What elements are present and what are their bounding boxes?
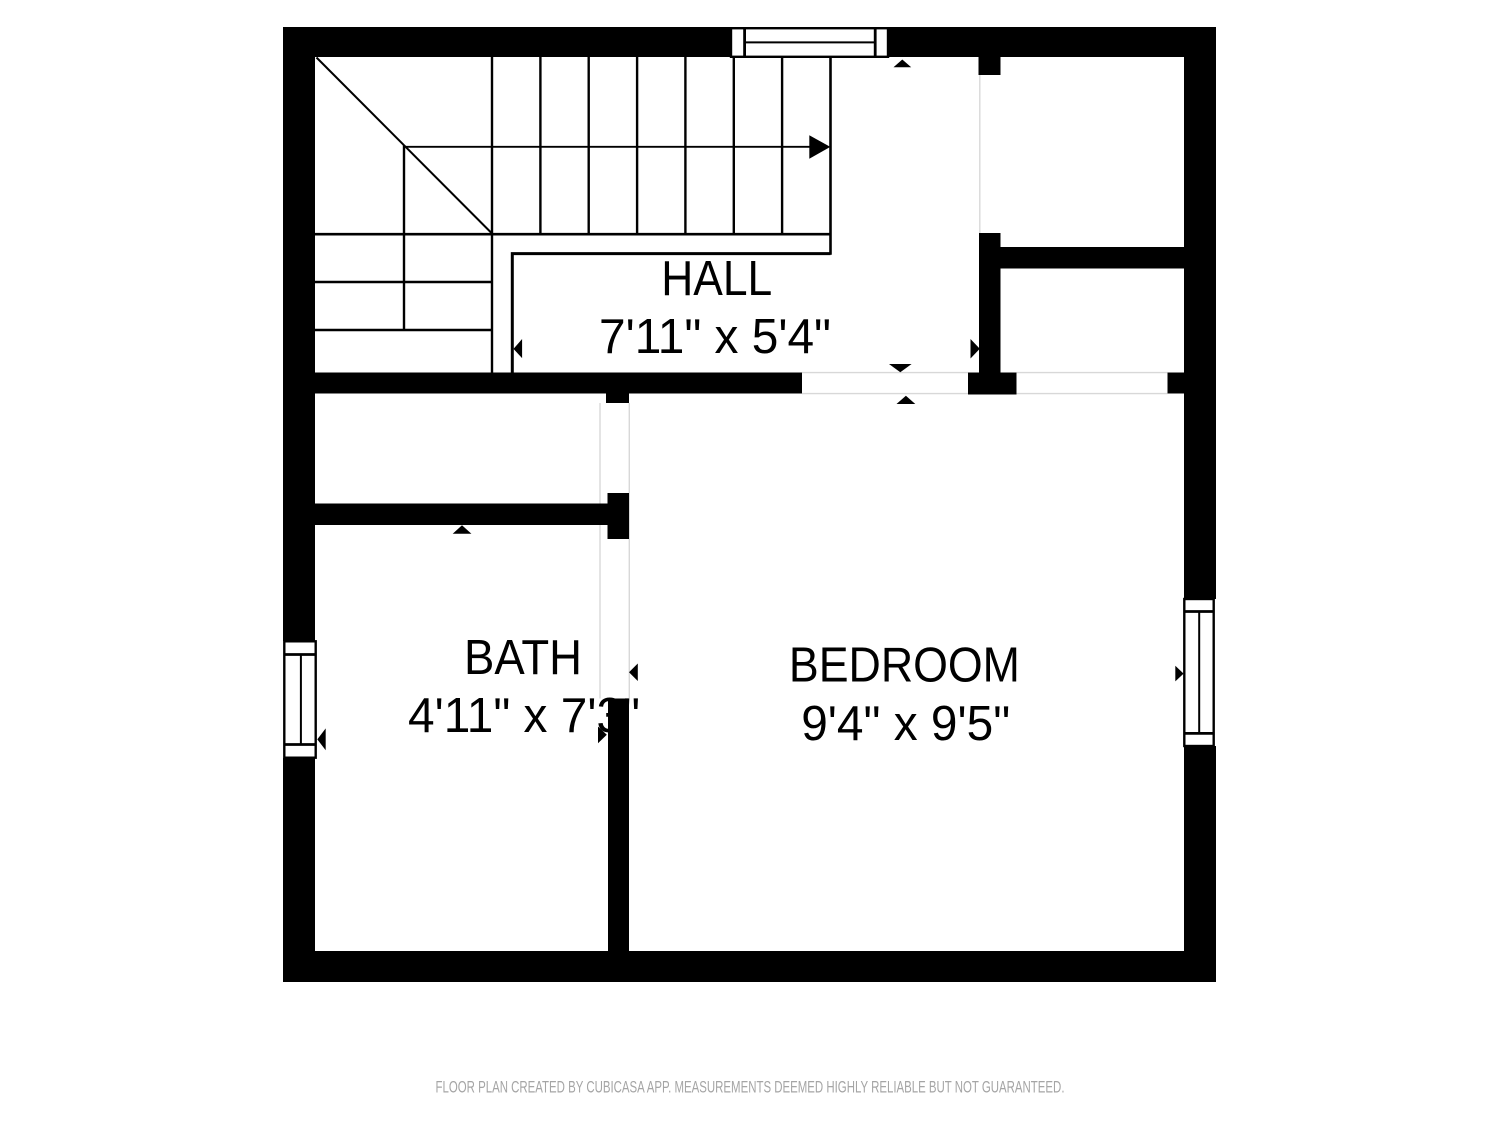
svg-text:FLOOR PLAN CREATED BY CUBICASA: FLOOR PLAN CREATED BY CUBICASA APP. MEAS… xyxy=(436,1078,1065,1097)
svg-text:9'4" x 9'5": 9'4" x 9'5" xyxy=(801,697,1010,751)
svg-text:7'11" x 5'4": 7'11" x 5'4" xyxy=(599,310,831,364)
svg-text:BEDROOM: BEDROOM xyxy=(789,639,1020,693)
svg-text:BATH: BATH xyxy=(464,631,582,685)
svg-text:HALL: HALL xyxy=(661,252,772,306)
